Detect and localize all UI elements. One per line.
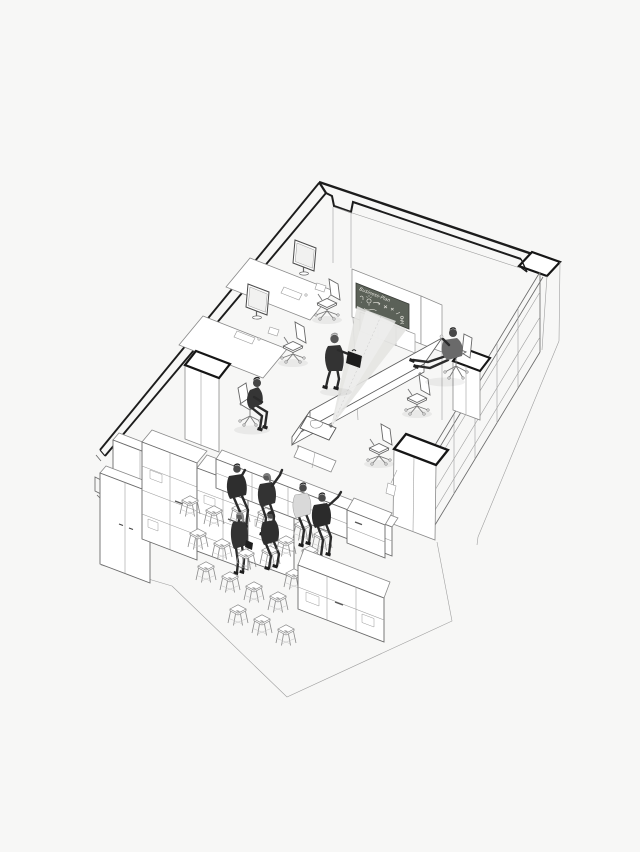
worker-head xyxy=(253,379,261,387)
table-cabinet xyxy=(294,446,336,472)
reader-head xyxy=(449,329,457,337)
cubby-shelf-d xyxy=(298,549,390,642)
stool xyxy=(196,562,216,583)
top-wall xyxy=(319,182,547,268)
mouse-1 xyxy=(305,294,307,296)
stool xyxy=(276,625,296,646)
monitor-1 xyxy=(293,240,316,275)
stool xyxy=(220,572,240,593)
column-bottom-right xyxy=(386,434,448,540)
right-shelving-wall xyxy=(432,272,543,530)
stool xyxy=(244,582,264,603)
drawing-canvas: Business-Plan xyxy=(0,0,640,852)
stool xyxy=(252,615,272,636)
axonometric-office-drawing: Business-Plan xyxy=(0,0,640,852)
right-pilaster xyxy=(477,252,560,545)
office-chair-empty-2 xyxy=(367,424,392,465)
column-left xyxy=(185,351,230,452)
stool xyxy=(268,592,288,613)
mouse-2 xyxy=(258,338,260,340)
cubby-shelf-e xyxy=(347,498,392,558)
tablet-2 xyxy=(268,327,279,336)
person-seated-desk-worker xyxy=(234,377,270,435)
office-chair-desk2 xyxy=(281,322,306,363)
light-shirt xyxy=(293,493,311,518)
presenter-coat xyxy=(325,345,344,371)
presenter-head xyxy=(330,335,338,343)
stool xyxy=(228,605,248,626)
